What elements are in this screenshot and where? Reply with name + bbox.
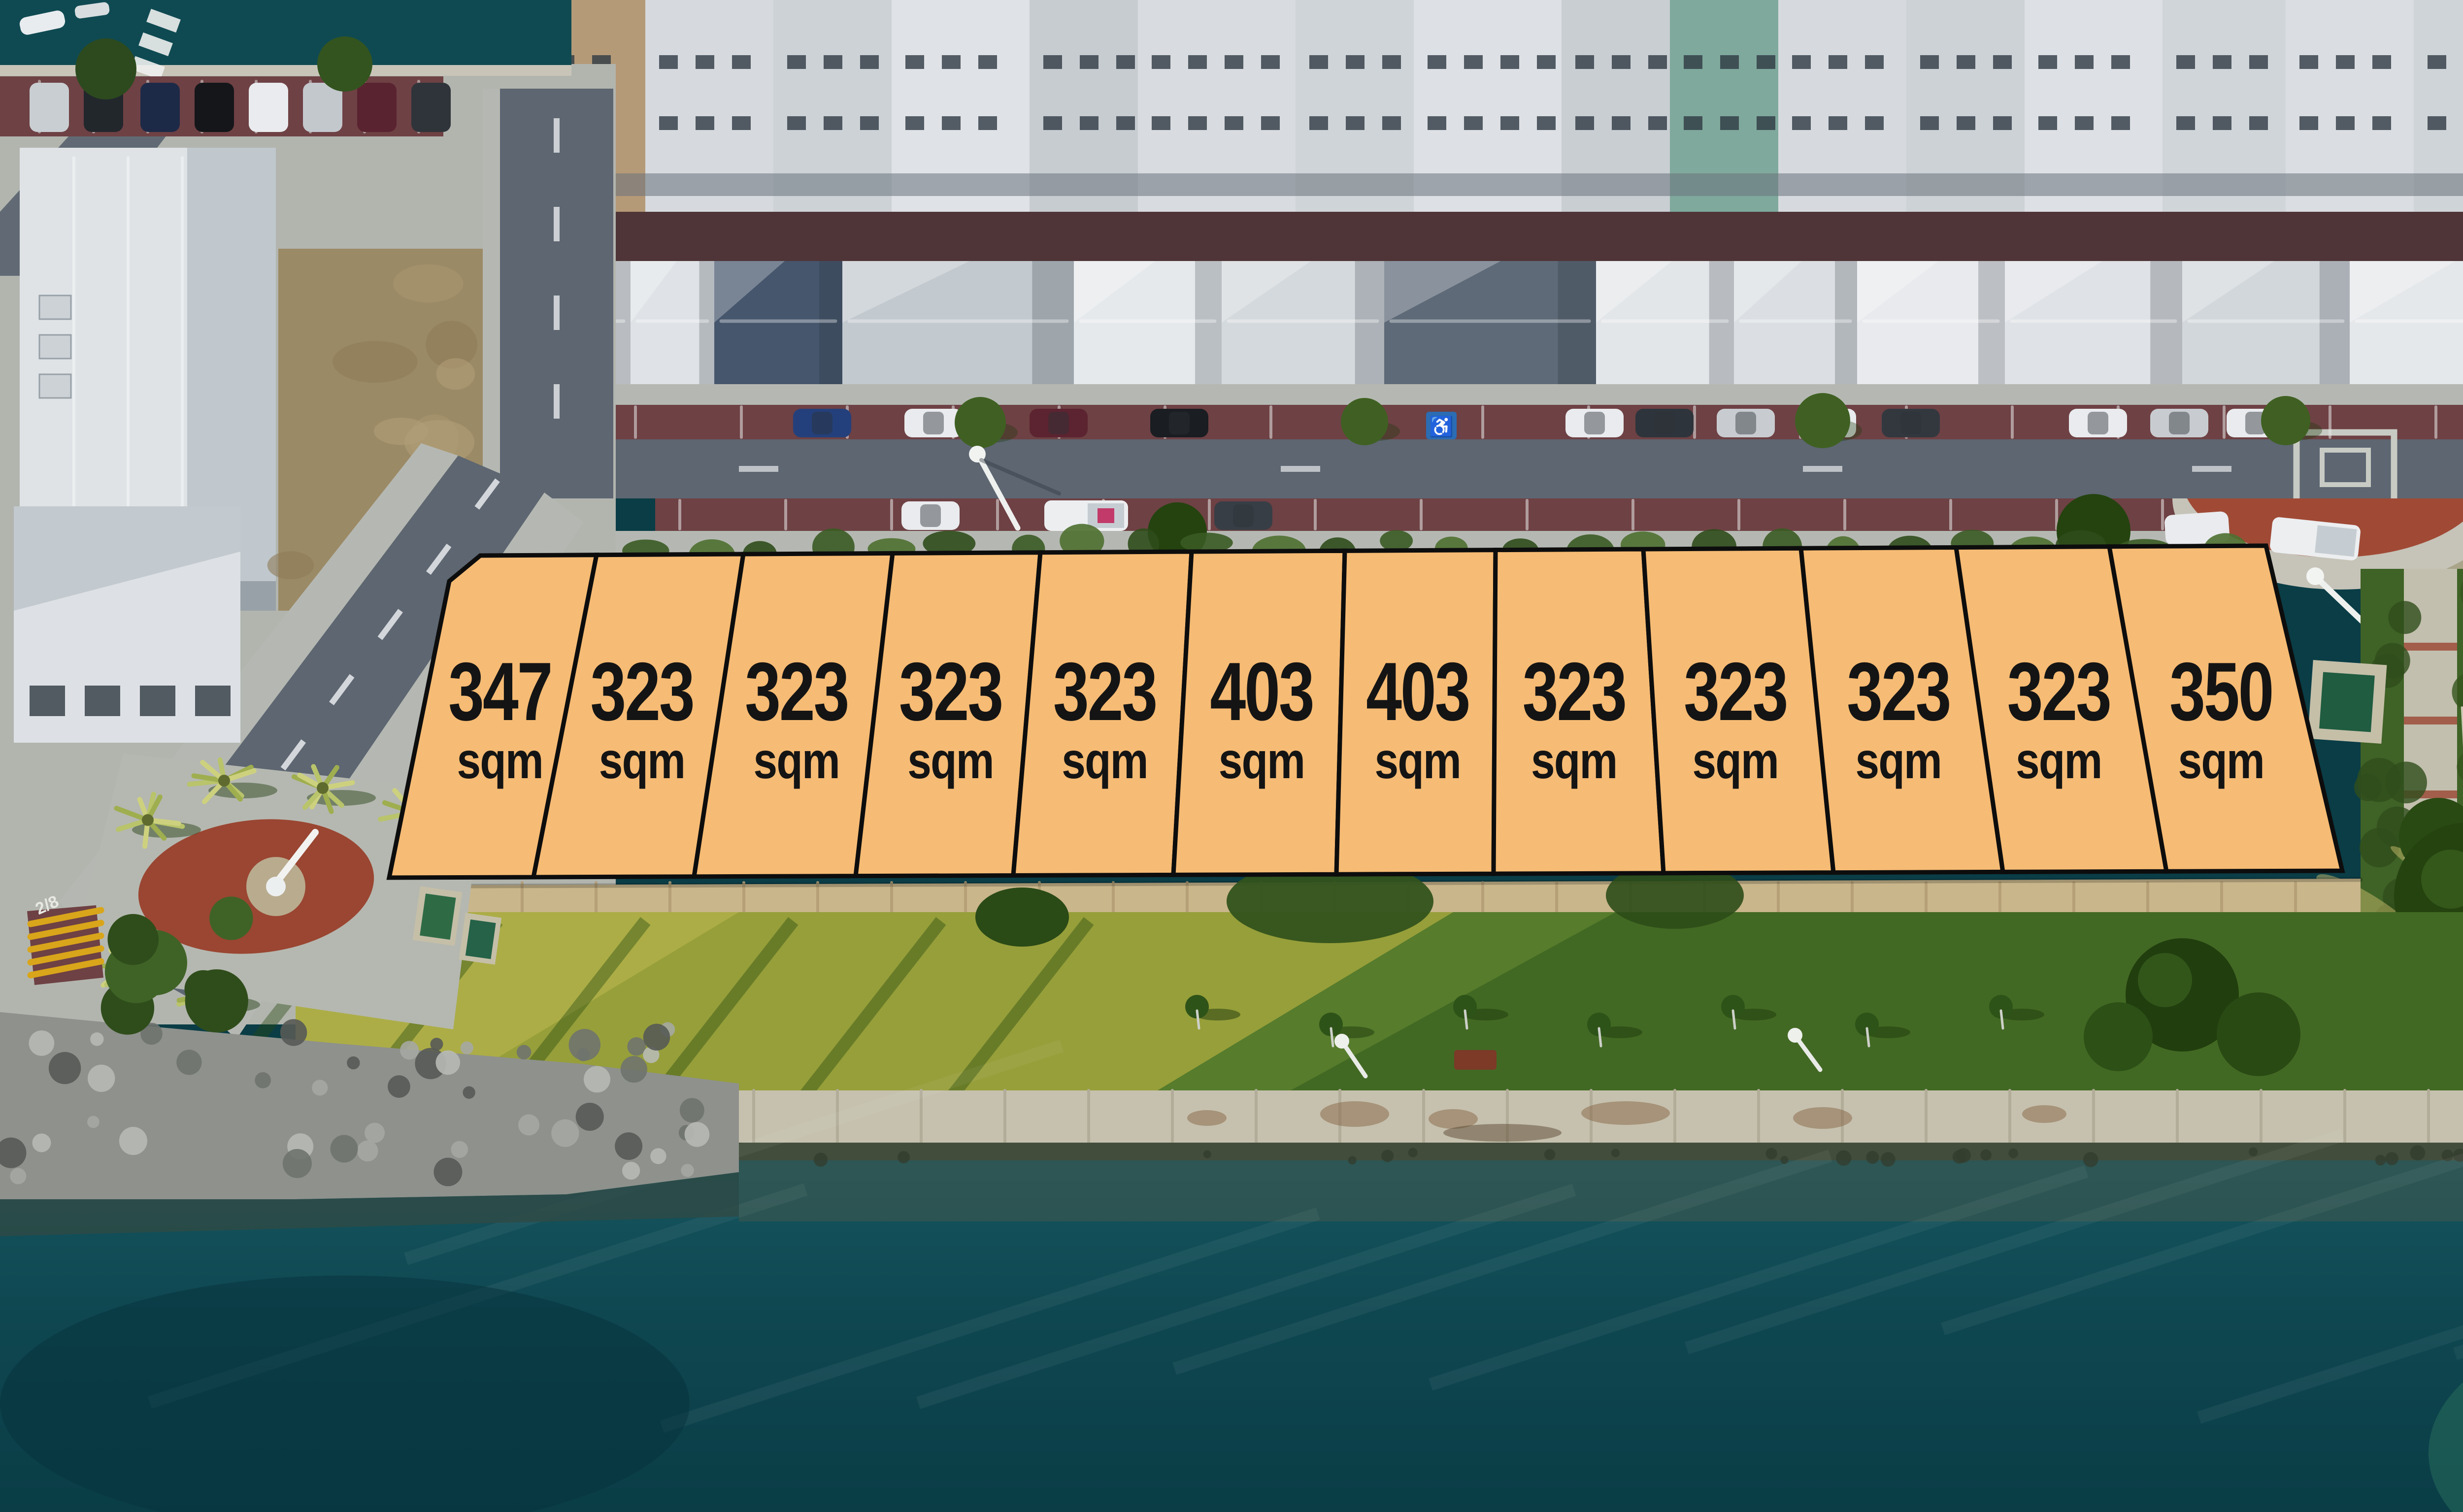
rock <box>88 1065 115 1092</box>
rock <box>32 1133 51 1152</box>
utility-box <box>466 920 496 959</box>
rock <box>388 1075 410 1098</box>
path-paver <box>2404 717 2457 724</box>
building-window <box>732 116 751 130</box>
lane-dash <box>1803 466 1842 472</box>
building-window <box>696 55 714 69</box>
building-window <box>2299 116 2318 130</box>
sidewalk <box>483 89 500 498</box>
lot-unit-label: sqm <box>753 732 839 789</box>
dirt-patch <box>393 264 463 302</box>
building-window <box>1648 55 1667 69</box>
lane-dash <box>554 207 560 241</box>
rock <box>681 1164 694 1177</box>
building-window <box>787 55 806 69</box>
building-window <box>1993 55 2012 69</box>
tree-highlight <box>2138 953 2192 1007</box>
shore-debris <box>1765 1148 1777 1159</box>
building-window <box>2372 116 2391 130</box>
building-window <box>1500 116 1519 130</box>
hedge-texture <box>2354 774 2382 801</box>
building-window <box>1080 55 1098 69</box>
park-light-head <box>1788 1028 1802 1043</box>
tree <box>317 36 372 92</box>
lot-area-label: 323 <box>590 645 693 737</box>
building-window <box>1500 55 1519 69</box>
building-window <box>1957 116 1975 130</box>
rock <box>365 1123 385 1143</box>
lot-area-label: 347 <box>448 645 551 737</box>
shore-debris <box>2410 1145 2425 1160</box>
rock <box>90 1032 103 1046</box>
parking-lane-bottom <box>655 498 2197 531</box>
car-glass <box>812 412 832 434</box>
building-window <box>1225 116 1243 130</box>
building-window <box>1309 116 1328 130</box>
shore-debris <box>898 1151 910 1163</box>
building-window <box>85 686 120 716</box>
building-window <box>1684 55 1702 69</box>
building-window <box>824 116 842 130</box>
shore-debris <box>1408 1148 1418 1157</box>
rock <box>518 1115 539 1136</box>
building-balcony <box>2414 173 2463 196</box>
car-glass <box>1735 412 1756 434</box>
building-window <box>1464 116 1483 130</box>
building-window <box>1865 55 1884 69</box>
street-light-head <box>2306 567 2324 585</box>
lot-area-label: 323 <box>1684 645 1787 737</box>
lot-area-label: 323 <box>1053 645 1156 737</box>
rock <box>280 1019 307 1046</box>
building-window <box>1428 116 1446 130</box>
building-balcony <box>1670 173 1778 196</box>
building-window <box>2176 116 2195 130</box>
building-window <box>942 55 961 69</box>
rock <box>643 1024 670 1051</box>
building-window <box>2372 55 2391 69</box>
rock <box>312 1080 328 1095</box>
path-paver <box>2404 643 2457 651</box>
building-window <box>1612 116 1631 130</box>
building-window <box>905 55 924 69</box>
building-window <box>1865 116 1884 130</box>
back-lane <box>542 212 2463 261</box>
shore-debris <box>2008 1149 2018 1158</box>
building-window <box>2428 55 2446 69</box>
dirt-patch <box>267 551 314 579</box>
lot-unit-label: sqm <box>1855 732 1941 789</box>
building-balcony <box>1778 173 1906 196</box>
shore-debris <box>2375 1155 2386 1166</box>
rock <box>576 1048 590 1061</box>
building-window <box>1792 116 1811 130</box>
lane-dash <box>1281 466 1320 472</box>
shore-debris <box>814 1152 828 1166</box>
car-glass <box>1654 412 1675 434</box>
shore-debris <box>1881 1152 1896 1167</box>
rock <box>357 1141 378 1162</box>
building-window <box>2176 55 2195 69</box>
street-tree <box>955 397 1006 448</box>
lot-area-label: 323 <box>745 645 848 737</box>
dirt-patch <box>374 418 429 445</box>
building-window <box>1920 116 1939 130</box>
main-street <box>512 439 2463 498</box>
dirt-patch <box>436 358 475 390</box>
monument <box>266 877 286 896</box>
promenade-stain <box>1320 1101 1389 1127</box>
building-window <box>2336 55 2355 69</box>
building-balcony <box>773 173 892 196</box>
rock <box>461 1041 473 1054</box>
rooftop-ac-unit <box>39 296 71 319</box>
building-window <box>1648 116 1667 130</box>
building-window <box>732 55 751 69</box>
building-window <box>1720 116 1739 130</box>
shore-debris <box>2083 1152 2098 1167</box>
building-window <box>1920 55 1939 69</box>
building-window <box>1043 55 1062 69</box>
rock <box>584 1066 610 1092</box>
promenade-stain <box>1187 1110 1227 1126</box>
bush <box>209 896 253 940</box>
car-glass <box>1900 412 1921 434</box>
building-window <box>860 55 879 69</box>
building-window <box>1684 116 1702 130</box>
lot-area-label: 323 <box>899 645 1002 737</box>
lane-dash <box>554 296 560 330</box>
building-window <box>1116 55 1135 69</box>
building-balcony <box>892 173 1030 196</box>
building-window <box>978 55 997 69</box>
building-window <box>1720 55 1739 69</box>
palm-crown <box>142 814 154 826</box>
rock <box>87 1116 100 1128</box>
rock <box>347 1056 360 1069</box>
lot-area-label: 323 <box>1847 645 1950 737</box>
shore-debris <box>1348 1156 1357 1164</box>
tree <box>2217 992 2300 1076</box>
rock <box>255 1072 271 1088</box>
building-balcony <box>1296 173 1414 196</box>
car-glass <box>1584 412 1605 434</box>
parked-car <box>140 83 180 132</box>
car-glass <box>923 412 944 434</box>
building-window <box>1537 55 1556 69</box>
parked-car <box>30 83 69 132</box>
hedge-texture <box>2388 601 2421 634</box>
building-window <box>1188 55 1207 69</box>
lot-unit-label: sqm <box>907 732 994 789</box>
lane-dash <box>2192 466 2231 472</box>
building-window <box>1612 55 1631 69</box>
building-window <box>2213 116 2231 130</box>
rock <box>433 1158 462 1186</box>
rock <box>551 1119 579 1147</box>
lot-unit-label: sqm <box>1531 732 1617 789</box>
building-window <box>2038 55 2057 69</box>
building-window <box>1346 116 1365 130</box>
rooftop-ac-unit <box>39 374 71 398</box>
lane-dash <box>554 118 560 153</box>
rooftop-ac-unit <box>39 335 71 359</box>
rock <box>435 1051 460 1075</box>
building-window <box>1792 55 1811 69</box>
rock <box>49 1052 81 1084</box>
shore-debris <box>1203 1150 1211 1158</box>
palm-crown <box>317 782 329 794</box>
accessible-parking-icon: ♿ <box>1429 415 1454 438</box>
lot-unit-label: sqm <box>457 732 543 789</box>
lot-area-label: 403 <box>1366 645 1469 737</box>
building-window <box>1346 55 1365 69</box>
rock <box>451 1141 468 1158</box>
building-window <box>1829 116 1847 130</box>
car-glass <box>920 504 941 527</box>
building-window <box>824 55 842 69</box>
ute-tray <box>2315 525 2357 557</box>
park-light-head <box>1334 1034 1349 1049</box>
rock <box>517 1045 532 1060</box>
rock <box>400 1041 419 1059</box>
building-window <box>787 116 806 130</box>
ute-cargo <box>1098 508 1114 523</box>
utility-box <box>2319 672 2375 732</box>
tree-canopy <box>975 887 1069 947</box>
building-window <box>1575 55 1594 69</box>
building-window <box>1993 116 2012 130</box>
lot-unit-label: sqm <box>1062 732 1148 789</box>
building-window <box>2075 55 2094 69</box>
building-window <box>1829 55 1847 69</box>
building-window <box>1757 55 1775 69</box>
building-window <box>1225 55 1243 69</box>
building-window <box>2038 116 2057 130</box>
building-window <box>2336 116 2355 130</box>
building-window <box>1152 116 1170 130</box>
car-glass <box>1169 412 1190 434</box>
shore-debris <box>1980 1150 1992 1161</box>
rock <box>119 1127 147 1155</box>
building-window <box>1309 55 1328 69</box>
building-window <box>860 116 879 130</box>
building-window <box>1188 116 1207 130</box>
shore-debris <box>1956 1148 1971 1163</box>
parked-car <box>411 83 451 132</box>
car-glass <box>2169 412 2190 434</box>
lot-area-label: 403 <box>1210 645 1313 737</box>
building-balcony <box>2025 173 2163 196</box>
building-window <box>1382 55 1401 69</box>
building-window <box>696 116 714 130</box>
building-window <box>659 55 678 69</box>
car-glass <box>1048 412 1069 434</box>
tree <box>2084 1002 2153 1071</box>
building-window <box>2249 116 2268 130</box>
building-window <box>1043 116 1062 130</box>
rock <box>463 1086 475 1099</box>
building-window <box>1957 55 1975 69</box>
building-window <box>2428 116 2446 130</box>
shallow-water <box>739 1152 2463 1221</box>
car-glass <box>1233 504 1254 527</box>
building-balcony <box>1562 173 1670 196</box>
bush <box>184 970 222 1008</box>
building-balcony <box>1030 173 1138 196</box>
shore-debris <box>1866 1151 1879 1164</box>
aerial-lot-map: 2/8♿347sqm323sqm323sqm323sqm323sqm403sqm… <box>0 0 2463 1512</box>
lot-unit-label: sqm <box>2016 732 2102 789</box>
building-window <box>1464 55 1483 69</box>
building-window <box>905 116 924 130</box>
rock <box>176 1050 201 1075</box>
building-window <box>1080 116 1098 130</box>
promenade-stain <box>1793 1107 1852 1129</box>
lot-unit-label: sqm <box>1219 732 1305 789</box>
building-window <box>2111 55 2130 69</box>
park-bench <box>1454 1050 1497 1070</box>
shore-debris <box>1544 1149 1556 1160</box>
scene-svg: 2/8♿347sqm323sqm323sqm323sqm323sqm403sqm… <box>0 0 2463 1512</box>
rock <box>621 1056 647 1083</box>
rock <box>10 1168 26 1184</box>
lot-unit-label: sqm <box>1692 732 1778 789</box>
shore-debris <box>1611 1149 1620 1157</box>
building-window <box>2111 116 2130 130</box>
parked-car <box>195 83 234 132</box>
building-window <box>195 686 231 716</box>
shore-debris <box>1780 1156 1788 1164</box>
promenade-stain <box>1443 1124 1562 1142</box>
building-window <box>140 686 175 716</box>
lot-area-label: 350 <box>2169 645 2272 737</box>
promenade-stain <box>1581 1101 1670 1125</box>
building-window <box>659 116 678 130</box>
building-window <box>1152 55 1170 69</box>
building-window <box>1575 116 1594 130</box>
rock <box>29 1030 55 1056</box>
building-balcony <box>2163 173 2286 196</box>
rock <box>685 1122 710 1147</box>
building-window <box>1537 116 1556 130</box>
lane-dash <box>739 466 778 472</box>
building-window <box>1116 116 1135 130</box>
building-window <box>2213 55 2231 69</box>
shore-debris <box>1381 1150 1394 1162</box>
palm-crown <box>218 775 230 787</box>
building-balcony <box>1414 173 1562 196</box>
lot-unit-label: sqm <box>599 732 685 789</box>
building-window <box>1382 116 1401 130</box>
shore-debris <box>2249 1148 2258 1156</box>
rock <box>430 1038 443 1051</box>
lot-unit-label: sqm <box>1374 732 1461 789</box>
dirt-patch <box>333 341 417 383</box>
building-window <box>1757 116 1775 130</box>
building-window <box>30 686 65 716</box>
lane-dash <box>554 384 560 419</box>
lot-unit-label: sqm <box>2178 732 2264 789</box>
rock <box>680 1098 704 1122</box>
building-window <box>2299 55 2318 69</box>
lot-area-label: 323 <box>1523 645 1626 737</box>
rock <box>650 1148 666 1164</box>
building-balcony <box>1906 173 2025 196</box>
rock <box>627 1037 646 1056</box>
building-window <box>942 116 961 130</box>
building-window <box>1261 116 1280 130</box>
building-window <box>2249 55 2268 69</box>
building-balcony <box>2286 173 2414 196</box>
rock <box>576 1103 604 1131</box>
promenade-stain <box>2022 1105 2066 1123</box>
rock <box>622 1162 640 1180</box>
rock <box>331 1135 358 1162</box>
building-balcony <box>645 173 773 196</box>
tree <box>75 38 136 99</box>
building-window <box>978 116 997 130</box>
bush <box>107 914 159 965</box>
rock <box>615 1132 642 1160</box>
rock <box>283 1149 312 1178</box>
street-tree <box>1795 393 1850 448</box>
shore-debris <box>2385 1152 2398 1165</box>
building-window <box>2075 116 2094 130</box>
parked-car <box>249 83 288 132</box>
building-balcony <box>1138 173 1296 196</box>
lot-area-label: 323 <box>2007 645 2110 737</box>
parked-car <box>357 83 397 132</box>
building-window <box>1428 55 1446 69</box>
building-window <box>1261 55 1280 69</box>
street-tree <box>1341 398 1388 445</box>
street-tree <box>2261 396 2310 445</box>
car-glass <box>2088 412 2108 434</box>
utility-box <box>420 893 456 940</box>
shore-debris <box>1836 1150 1851 1166</box>
